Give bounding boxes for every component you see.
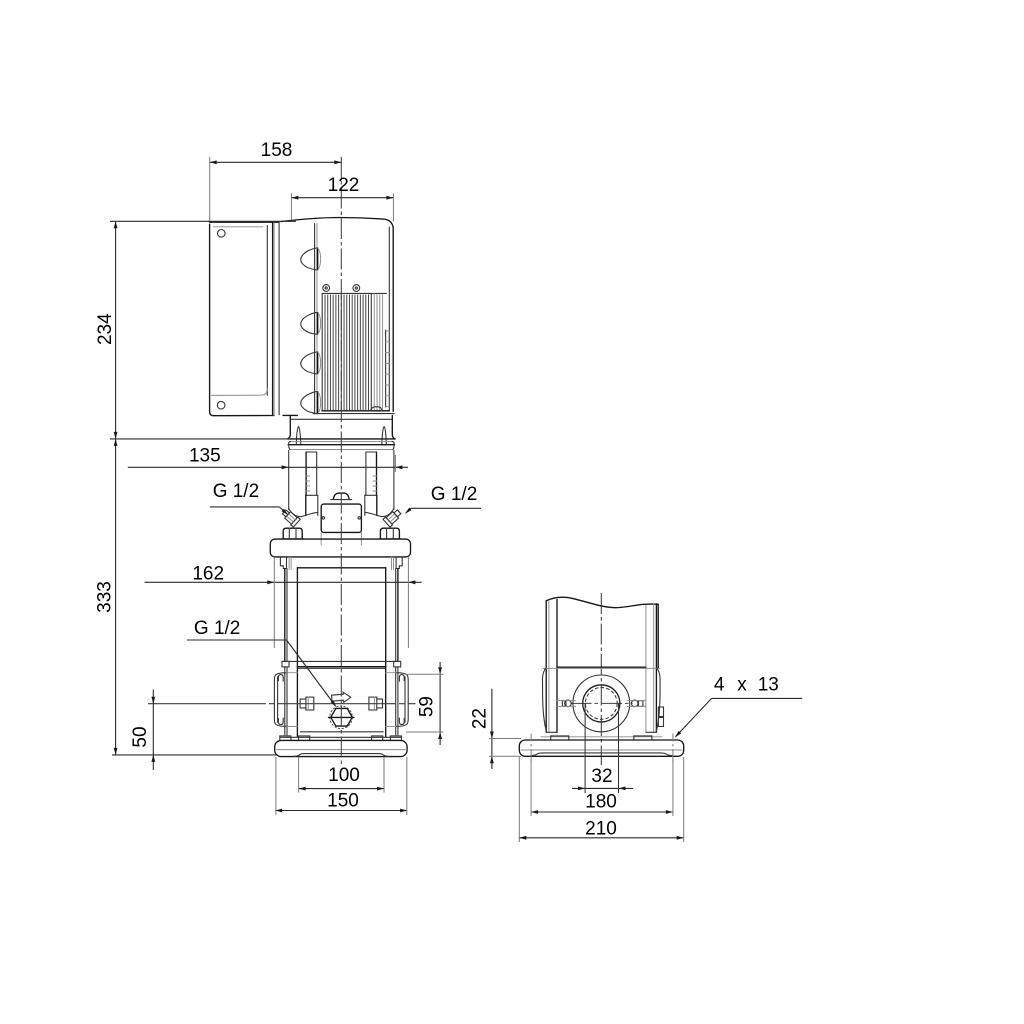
svg-text:122: 122 — [328, 175, 360, 196]
svg-text:180: 180 — [585, 791, 617, 812]
svg-text:22: 22 — [470, 708, 491, 729]
svg-text:13: 13 — [758, 675, 779, 696]
svg-text:G 1/2: G 1/2 — [194, 618, 240, 639]
svg-text:32: 32 — [591, 766, 612, 787]
svg-text:158: 158 — [261, 140, 293, 161]
svg-text:135: 135 — [189, 446, 221, 467]
svg-text:150: 150 — [327, 791, 359, 812]
svg-text:G 1/2: G 1/2 — [213, 481, 259, 502]
svg-text:210: 210 — [585, 819, 617, 840]
svg-text:50: 50 — [130, 726, 151, 747]
svg-text:59: 59 — [417, 696, 438, 717]
svg-text:234: 234 — [95, 313, 116, 345]
svg-text:x: x — [737, 675, 747, 696]
svg-text:100: 100 — [328, 765, 360, 786]
svg-text:G 1/2: G 1/2 — [431, 484, 477, 505]
svg-text:333: 333 — [95, 581, 116, 613]
svg-text:4: 4 — [714, 675, 725, 696]
svg-text:162: 162 — [192, 564, 224, 585]
